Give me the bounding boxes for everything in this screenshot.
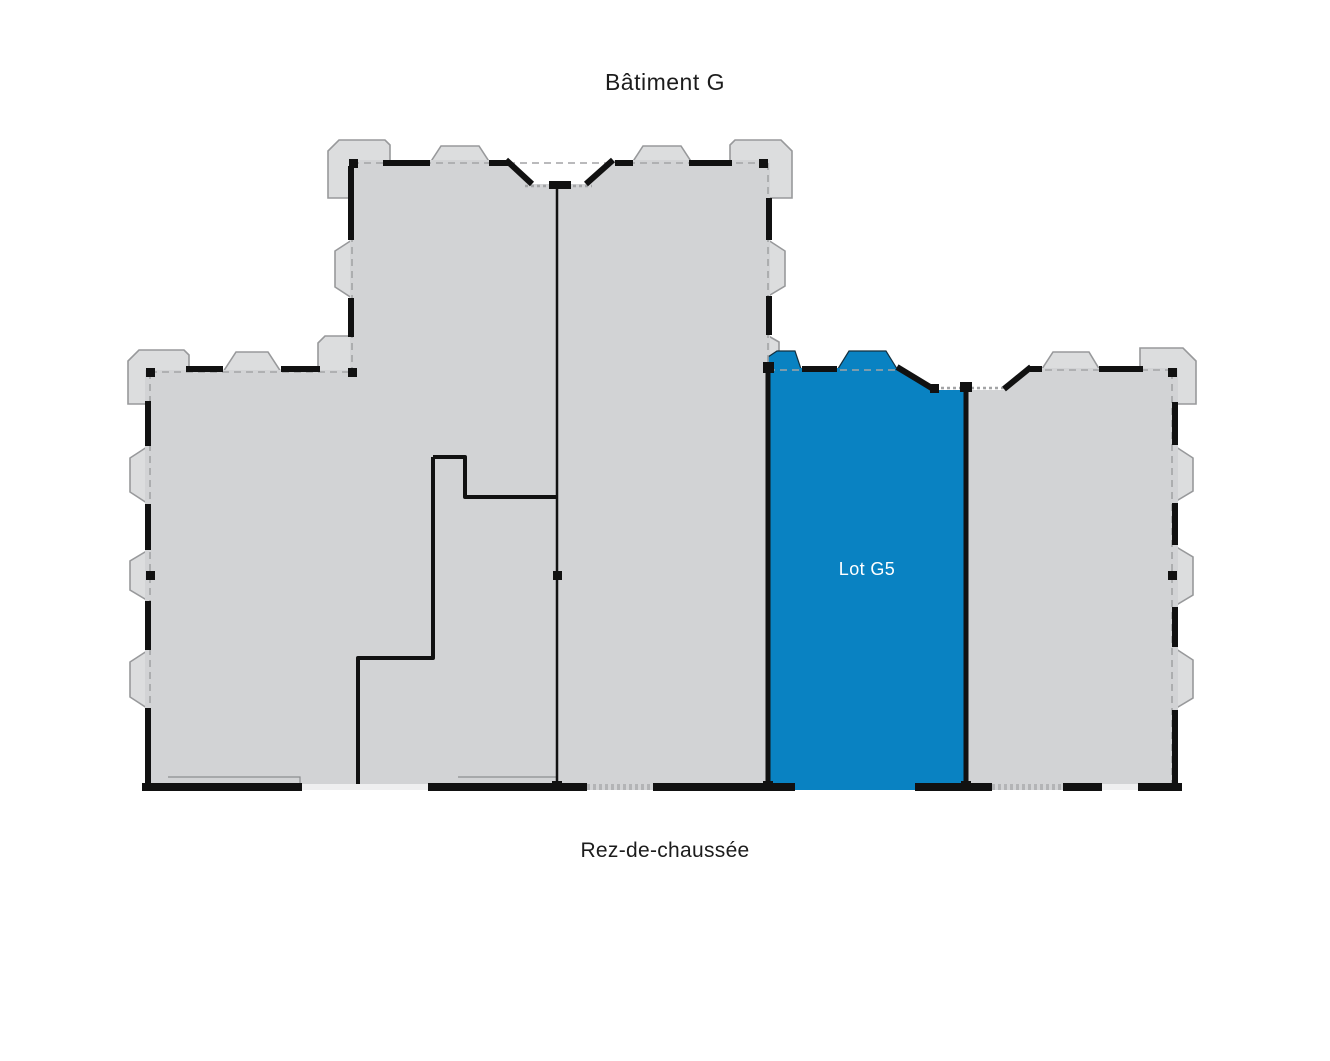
floor-plan-canvas: Bâtiment G Lot G5 Rez-de-chaussée <box>0 0 1330 1061</box>
wall-node <box>552 781 562 790</box>
units-group <box>145 160 1178 790</box>
wall-node <box>146 571 155 580</box>
lot-g5[interactable] <box>768 368 966 790</box>
plan-title: Bâtiment G <box>605 69 725 95</box>
corner-bay <box>318 336 352 372</box>
wall-node <box>349 159 358 168</box>
wall-node <box>146 368 155 377</box>
wall-node <box>1168 571 1177 580</box>
unit-left[interactable] <box>145 160 557 790</box>
wall-node <box>553 571 562 580</box>
wall-node <box>960 382 972 392</box>
floor-plan-page: Bâtiment G Lot G5 Rez-de-chaussée <box>0 0 1330 1061</box>
wall-node <box>763 362 774 373</box>
wall-node <box>1168 368 1177 377</box>
wall-node <box>930 384 939 393</box>
wall-node <box>348 368 357 377</box>
wall-node <box>961 781 971 790</box>
unit-right[interactable] <box>966 368 1178 790</box>
bay-window <box>223 352 281 372</box>
lot-g5-label: Lot G5 <box>839 559 895 579</box>
wall-node <box>759 159 768 168</box>
unit-middle[interactable] <box>557 160 770 790</box>
wall-node <box>549 181 571 189</box>
wall-node <box>763 781 773 790</box>
floor-caption: Rez-de-chaussée <box>580 839 749 862</box>
